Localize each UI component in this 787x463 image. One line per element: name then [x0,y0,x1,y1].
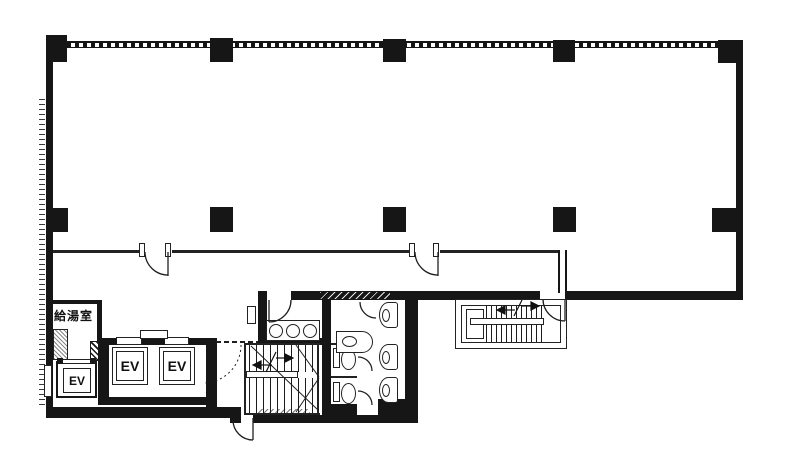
stair-edge [244,343,246,415]
corner-column-top-left [46,35,67,62]
column [553,40,575,62]
stair-handrail [470,318,544,325]
door-jamb [159,339,165,345]
partition-wall [53,250,140,253]
call-panel-frame [140,330,168,339]
door-jamb [111,339,117,345]
sink-basin-icon [303,324,317,338]
double-line-wall [558,250,567,293]
stall-divider [331,376,357,378]
door-swing [360,302,376,318]
bottom-wall-step [230,407,241,423]
wall-block [330,404,357,416]
south-wall [565,291,743,300]
urinal-icon [379,344,398,370]
column [712,208,736,232]
sink-basin-icon [269,324,283,338]
column [553,207,576,232]
elevator-car: EV [63,368,91,393]
kitchenette-wall [53,300,102,304]
stair-edge [244,413,320,415]
stall-door-swing [358,391,372,405]
door-jamb [139,243,145,257]
door-jamb [165,243,171,257]
bottom-wall [253,415,418,423]
door-swing [269,300,291,322]
elevator-shaft-wall [98,397,217,405]
elevator-car: EV [116,351,144,381]
toilet-wall [322,300,331,415]
sink-basin-icon [286,324,300,338]
kitchenette-counter [53,329,68,360]
wall-hatch [320,292,390,299]
right-wall [736,40,743,300]
elevator-door [116,337,142,345]
elevator-door [62,359,91,364]
stair-treads [249,345,317,372]
toilet-tank-icon [333,382,340,402]
left-window-band [39,95,45,405]
column [383,39,406,62]
elevator-label: EV [121,358,140,374]
partition-wall [172,250,409,253]
hall-wall [206,338,217,418]
toilet-bowl-icon [341,383,356,404]
elevator-car: EV [163,351,191,381]
urinal-bowl [382,309,390,322]
column [210,207,233,232]
column [53,208,68,232]
pipe-shaft [44,365,52,397]
stair-edge [317,343,319,415]
door-jamb [90,358,96,364]
door-jamb [142,339,148,345]
urinal-icon [379,302,398,328]
column [383,207,406,232]
urinal-bowl [382,384,390,397]
elevator-label: EV [168,358,187,374]
door-jamb [57,358,63,364]
door-jamb [409,243,415,257]
urinal-icon [379,377,398,403]
partition-wall [440,250,559,253]
floor-plan: 給湯室 EV EV EV [0,0,787,463]
door-jamb [191,339,197,345]
urinal-bowl [382,351,390,364]
door-jamb [433,243,439,257]
left-wall [46,36,53,418]
elevator-shaft-wall [98,338,109,404]
elevator-label: EV [69,374,85,388]
column [210,38,233,62]
duct-box [247,306,256,324]
kitchenette-label: 給湯室 [54,307,102,324]
stair-treads [249,378,317,413]
stair-handrail [246,371,298,378]
door-swing [233,420,253,440]
stall-door-swing [358,357,372,371]
lavatory-basin-icon [342,336,357,347]
